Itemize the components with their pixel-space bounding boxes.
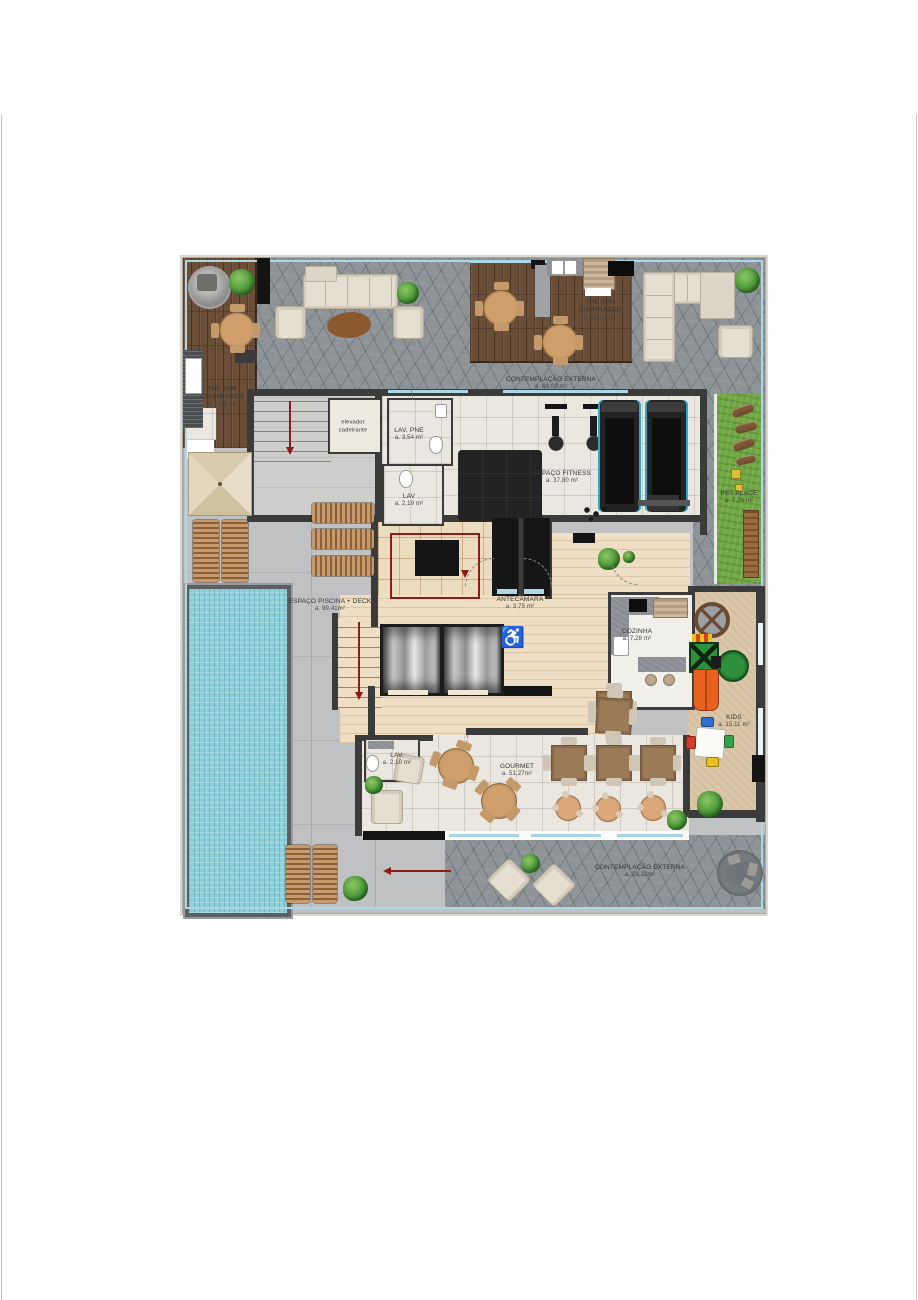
elevator-sill-2 — [448, 690, 488, 695]
room-label-churrasco-left: THE SUN CHURRASCO a. 7,56 m² — [196, 386, 248, 411]
room-name: ESPAÇO FITNESS — [533, 470, 591, 477]
room-name: LAV. PNE — [394, 427, 423, 434]
small-round-table — [640, 795, 666, 821]
armchair — [718, 325, 753, 358]
room-label-kids: KIDS a. 15,11 m² — [709, 714, 759, 730]
elevator-sill-1 — [388, 690, 428, 695]
dining-table — [595, 697, 633, 735]
exit-arrow-line — [391, 870, 451, 872]
stool — [645, 674, 657, 686]
pet-sign — [731, 469, 741, 479]
room-area: a. 3,54 m² — [382, 435, 436, 443]
kids-chair-red — [686, 736, 696, 749]
sun-lounger — [193, 520, 219, 582]
room-label-wheelchair-lift: elevador cadeirante — [330, 419, 376, 434]
wall-fitness-east — [700, 389, 707, 535]
room-name: KIDS — [726, 714, 742, 721]
floor-plan: elevador cadeirante ♿ — [183, 258, 765, 913]
stool — [663, 674, 675, 686]
small-round-table — [555, 795, 581, 821]
room-name: COZINHA — [622, 628, 652, 635]
wall-gourmet-north-2 — [466, 728, 588, 735]
swimming-pool — [185, 585, 291, 917]
sun-lounger — [313, 845, 337, 903]
room-area: a. 2,19 m² — [384, 501, 434, 509]
toilet — [399, 470, 413, 488]
pool-stairs-arrow-head — [355, 692, 363, 700]
room-area: a. 15,11 m² — [709, 722, 759, 730]
room-name: ANTECÂMARA — [497, 596, 544, 603]
playground-pool — [717, 650, 749, 682]
room-area: a. 37,80 m² — [515, 478, 609, 486]
page-edge-right — [916, 114, 917, 1300]
room-area: a. 7,28 m² — [607, 636, 667, 644]
round-table — [219, 312, 255, 348]
gourmet-south-windows — [445, 831, 689, 840]
dumbbells — [583, 505, 609, 523]
small-round-table — [595, 796, 621, 822]
sun-lounger — [286, 845, 310, 903]
wall-kids-north — [688, 586, 765, 592]
umbrella — [188, 452, 252, 516]
dining-table — [596, 745, 632, 781]
sun-lounger — [312, 529, 374, 549]
floor-plan-page: { "plan": { "rooms": [ {"name":"THE SUN … — [0, 0, 918, 1300]
room-label-contemplacao-top: CONTEMPLAÇÃO EXTERNA a. 68,02 m² — [486, 376, 616, 392]
playground-slide — [693, 669, 719, 711]
room-label-lav-pne: LAV. PNE a. 3,54 m² — [382, 427, 436, 443]
room-name: CONTEMPLAÇÃO EXTERNA — [595, 864, 685, 871]
armchair — [393, 306, 424, 339]
kids-window-1 — [758, 623, 763, 665]
lobby-stairs-arrow-line — [289, 401, 291, 447]
room-area: a. 2,10 m² — [374, 760, 420, 768]
wheelchair-icon: ♿ — [500, 628, 525, 648]
room-name: THE SUN CHURRASCO — [578, 299, 621, 314]
wall-hall-west — [368, 686, 375, 738]
room-label-cozinha: COZINHA a. 7,28 m² — [607, 628, 667, 644]
room-area: a. 51,27m² — [477, 771, 557, 779]
armchair — [275, 306, 306, 339]
kids-chair-green — [724, 735, 734, 748]
kids-table — [694, 727, 727, 760]
kitchen-island — [638, 657, 686, 672]
exercise-bike — [545, 404, 567, 452]
room-name: ESPAÇO PISCINA + DECK — [289, 598, 372, 605]
grill-top — [608, 261, 634, 276]
wall-chunk-hall — [573, 533, 595, 543]
room-area: a. 7,26 m² — [716, 498, 762, 506]
room-area: a. 3,75 m² — [483, 604, 557, 612]
wall-chunk-kids — [752, 755, 765, 782]
wall-poolstairs-west — [332, 613, 338, 710]
sun-lounger — [222, 520, 248, 582]
wall-chunk-deck — [235, 350, 257, 363]
room-label-contemplacao-bottom: CONTEMPLAÇÃO EXTERNA a. 28,32m² — [570, 864, 710, 880]
wall-kids-east — [756, 586, 765, 822]
room-label-lav: LAV a. 2,19 m² — [384, 493, 434, 509]
exit-arrow-head — [383, 867, 391, 875]
counter-white — [585, 288, 611, 296]
round-table — [483, 290, 519, 326]
pet-bench — [743, 510, 759, 578]
kids-chair-yellow — [706, 757, 719, 767]
playground-bar — [692, 634, 712, 642]
kids-round-table — [694, 602, 730, 638]
room-label-pet-place: PET PLACE a. 7,26 m² — [716, 490, 762, 506]
dining-table — [640, 745, 676, 781]
railing-glass-bottom — [185, 907, 763, 909]
wall-gourmet-west — [355, 735, 362, 836]
room-name: CONTEMPLAÇÃO EXTERNA — [506, 376, 596, 383]
circulation-path-loop — [390, 533, 480, 599]
room-label-piscina: ESPAÇO PISCINA + DECK a. 99,41m² — [277, 598, 383, 614]
page-edge-left — [1, 114, 2, 1300]
wheelchair-glyph: ♿ — [500, 627, 525, 649]
chaise-pad — [700, 272, 735, 319]
room-area: a. 7,56 m² — [196, 403, 248, 411]
room-label-churrasco-top: THE SUN CHURRASCO a. 16,57 m² — [574, 299, 626, 324]
shaft-door-1 — [497, 589, 517, 594]
room-area: a. 16,57 m² — [574, 316, 626, 324]
kitchen-cabinet — [653, 598, 688, 618]
shaft-door-2 — [524, 589, 544, 594]
room-area: a. 99,41m² — [277, 606, 383, 614]
elevator — [380, 624, 443, 696]
round-table — [542, 324, 578, 360]
room-name: LAV — [403, 493, 415, 500]
room-label-gourmet-lav: LAV. a. 2,10 m² — [374, 752, 420, 768]
room-name: THE SUN CHURRASCO — [200, 386, 243, 401]
treadmill — [598, 400, 641, 512]
pool-stairs-arrow-line — [358, 622, 360, 692]
sun-lounger — [312, 503, 374, 523]
room-label-antecamara: ANTECÂMARA a. 3,75 m² — [483, 596, 557, 612]
armchair — [371, 790, 403, 824]
hanging-chair — [188, 266, 231, 309]
playground-tunnel — [711, 656, 721, 668]
wall-chunk-topleft — [257, 258, 270, 304]
room-area: a. 28,32m² — [570, 872, 710, 880]
lobby-stairs-arrow-head — [286, 447, 294, 455]
sun-lounger — [312, 556, 374, 576]
wheelchair-lift-label: elevador cadeirante — [339, 419, 368, 433]
room-area: a. 68,02 m² — [486, 384, 616, 392]
double-sink — [551, 260, 577, 275]
room-name: LAV. — [390, 752, 404, 759]
sofa-cushion — [305, 266, 337, 282]
room-name: GOURMET — [500, 763, 534, 770]
wall-building-top — [247, 389, 702, 396]
sectional-sofa-side — [643, 272, 675, 362]
elevator — [441, 624, 504, 696]
weight-bench — [638, 488, 690, 518]
sink — [435, 404, 447, 418]
room-name: PET PLACE — [721, 490, 758, 497]
room-label-gourmet: GOURMET a. 51,27m² — [477, 763, 557, 779]
lav-counter — [368, 741, 394, 749]
wall-gourmet-south-solid — [363, 831, 445, 840]
room-label-fitness: ESPAÇO FITNESS a. 37,80 m² — [515, 470, 609, 486]
plant — [397, 282, 419, 304]
